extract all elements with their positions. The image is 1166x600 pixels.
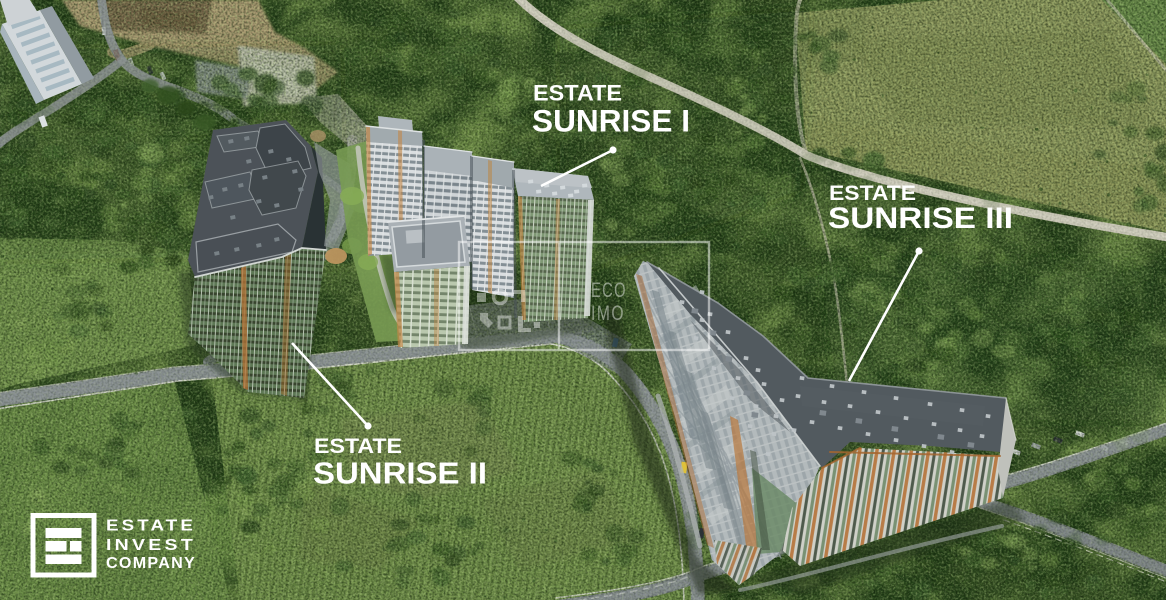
svg-text:SUNRISE I: SUNRISE I	[532, 103, 690, 139]
svg-text:SUNRISE III: SUNRISE III	[828, 202, 1013, 235]
svg-text:INVEST: INVEST	[106, 537, 196, 554]
svg-text:COMPANY: COMPANY	[106, 555, 196, 572]
svg-text:IMO: IMO	[591, 302, 625, 325]
svg-text:ECO: ECO	[591, 279, 627, 302]
svg-text:ESTATE: ESTATE	[106, 518, 196, 535]
svg-text:SUNRISE II: SUNRISE II	[313, 456, 487, 491]
